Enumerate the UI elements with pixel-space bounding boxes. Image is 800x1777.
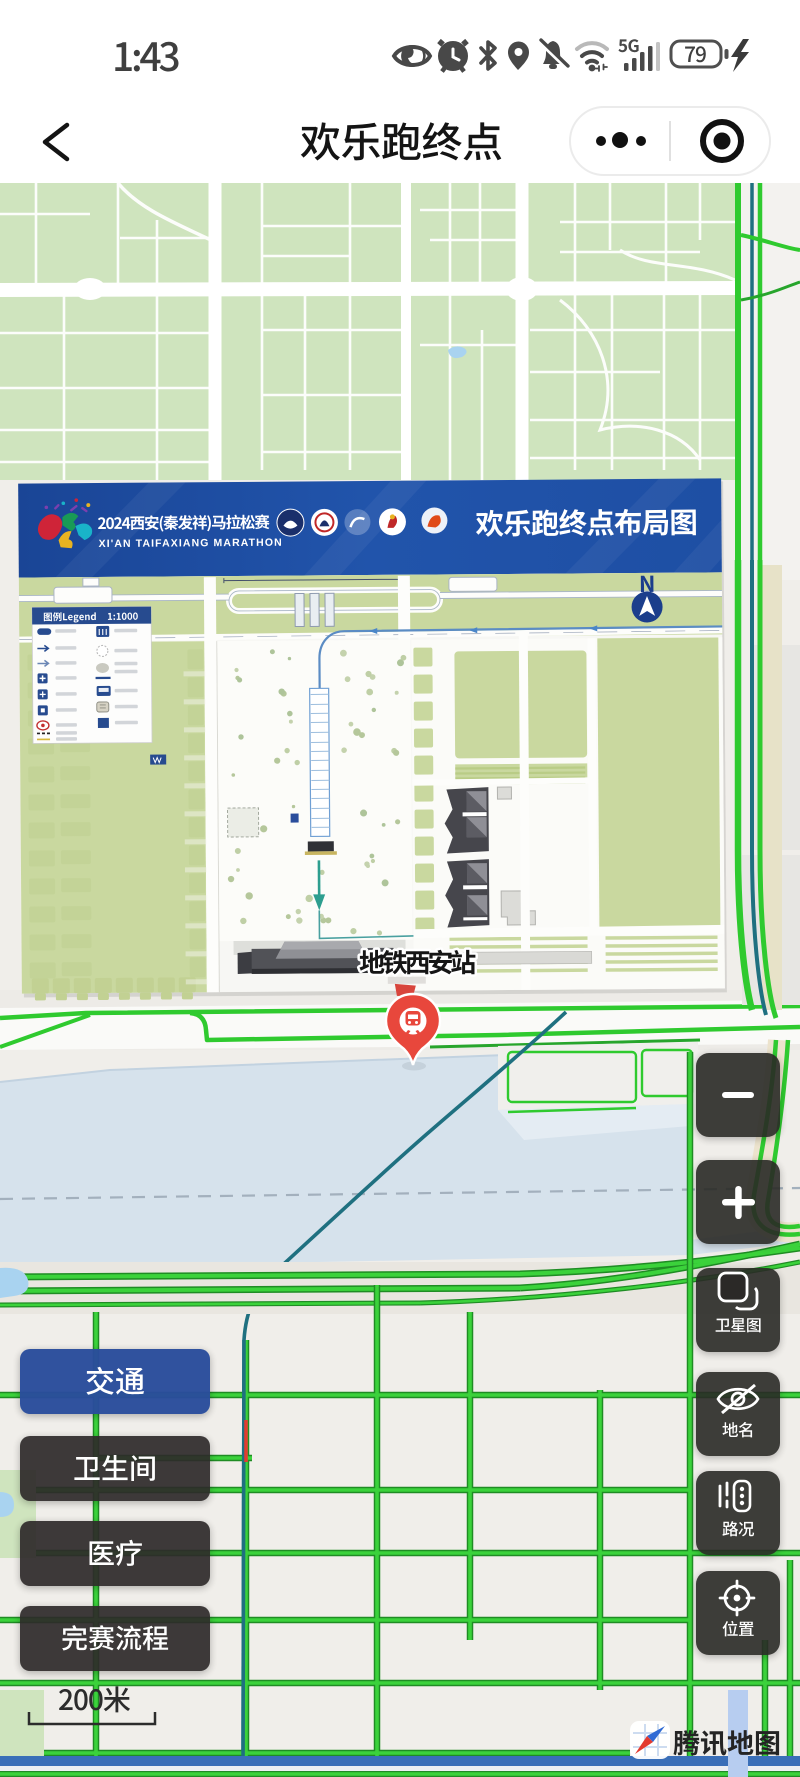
svg-text:XI'AN TAIFAXIANG MARATHON: XI'AN TAIFAXIANG MARATHON bbox=[99, 537, 283, 550]
